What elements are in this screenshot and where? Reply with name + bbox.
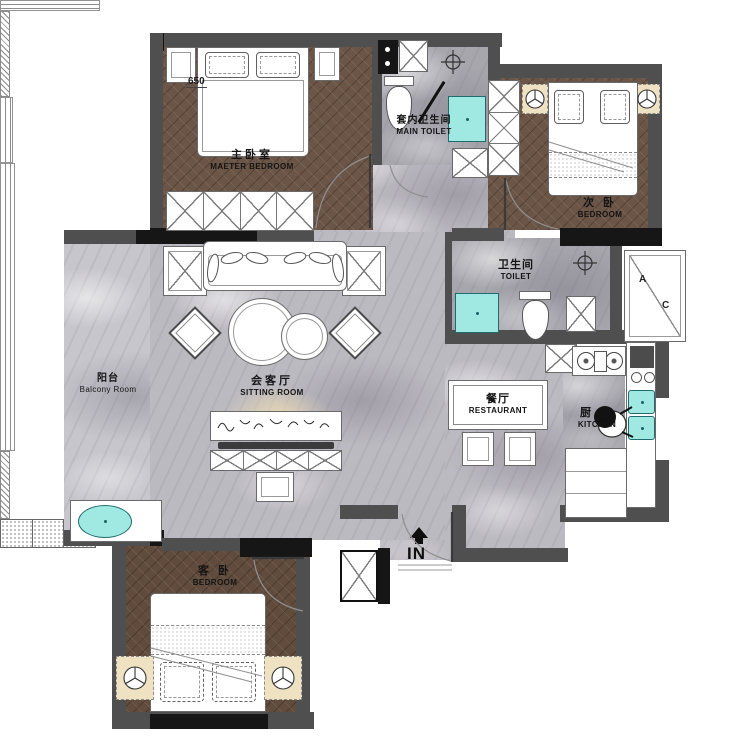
master-bedroom-label: 主卧室 MAETER BEDROOM	[202, 148, 302, 173]
toilet-label: 卫生间 TOILET	[471, 258, 561, 283]
toilet-left-wall	[445, 232, 452, 344]
toilet-vanity	[455, 293, 499, 333]
master-pillow-left	[205, 52, 249, 78]
tv-bench	[256, 472, 294, 502]
master-wardrobe-door	[204, 192, 241, 230]
toilet-tank	[519, 291, 551, 300]
entrance-label: IN	[407, 544, 426, 564]
side-table-top	[347, 251, 381, 291]
kitchen-right-wall-upper	[655, 344, 669, 398]
utility-shaft	[340, 550, 378, 602]
master-pillow-right	[256, 52, 300, 78]
tv-bench-top	[261, 477, 289, 497]
second-bed-blanket	[549, 152, 637, 178]
dining-room-label-en: RESTAURANT	[448, 406, 548, 416]
master-wardrobe-door	[241, 192, 278, 230]
kitchen-right-window	[0, 97, 13, 163]
shaft-right-wall	[378, 548, 390, 604]
pillow-seam	[604, 94, 626, 120]
guest-bedroom-label-zh: 客 卧	[165, 564, 265, 578]
pillow-seam	[558, 94, 580, 120]
dining-chair-left	[462, 432, 494, 466]
entrance-arrow-head	[410, 527, 428, 538]
guest-pillow-left	[160, 662, 204, 702]
stove-burner-left	[577, 352, 595, 370]
kitchen-counter-bottom	[565, 448, 627, 518]
stove-burner-right	[605, 352, 623, 370]
master-bed-sheet	[202, 80, 304, 152]
guest-top-wall	[162, 538, 240, 551]
main-toilet-counter	[378, 40, 398, 74]
tv-cabinet-door	[277, 451, 310, 470]
main-toilet-label-en: MAIN TOILET	[379, 127, 469, 137]
master-nightstand-right	[314, 47, 340, 81]
balcony-label-en: Balcony Room	[68, 385, 148, 395]
sideboard-section	[1, 520, 33, 547]
second-bedroom-nightstand-left	[522, 84, 548, 114]
sofa-seat	[208, 255, 342, 286]
toilet-label-en: TOILET	[471, 272, 561, 282]
guest-bottom-wall-black	[150, 714, 268, 729]
sofa-side-table-right	[342, 246, 386, 296]
balcony-top-corner	[136, 230, 163, 244]
ac-unit-panel	[629, 255, 681, 337]
master-wardrobe-door	[167, 192, 204, 230]
stove	[572, 346, 626, 376]
guest-nightstand-right	[264, 656, 302, 700]
guest-top-wall-black	[240, 538, 312, 557]
chair-seat	[509, 437, 531, 461]
master-left-wall	[150, 33, 163, 233]
ac-letter-c: C	[662, 300, 669, 311]
coffee-table-small	[281, 313, 328, 360]
ac-unit	[624, 250, 686, 342]
entry-left-wall	[340, 505, 398, 519]
ac-top-wall	[610, 232, 630, 246]
toilet-cabinet	[566, 296, 596, 332]
second-bed-pillow-right	[600, 90, 630, 124]
kitchen-label: 厨 房 KITCHEN	[552, 406, 642, 431]
dining-room-label-zh: 餐厅	[448, 392, 548, 406]
wardrobe-door	[489, 144, 519, 175]
stove-center-panel	[594, 351, 607, 372]
counter-basin-dot	[385, 47, 390, 52]
balcony-sink	[78, 505, 132, 538]
sitting-room-label-zh: 会客厅	[222, 374, 322, 388]
guest-nightstand-left	[116, 656, 154, 700]
master-bedroom-label-en: MAETER BEDROOM	[202, 162, 302, 172]
tv-screen	[218, 442, 334, 449]
second-bedroom-label-en: BEDROOM	[555, 210, 645, 220]
master-bedroom-label-zh: 主卧室	[202, 148, 302, 162]
sitting-room-label-en: SITTING ROOM	[222, 388, 322, 398]
second-bedroom-label: 次 卧 BEDROOM	[555, 196, 645, 221]
master-top-window	[0, 0, 100, 11]
balcony-label: 阳台 Balcony Room	[68, 372, 148, 395]
second-bedroom-label-zh: 次 卧	[555, 196, 645, 210]
washer	[399, 40, 428, 72]
vanity-faucet-dot	[476, 312, 479, 315]
dining-room-label: 餐厅 RESTAURANT	[448, 392, 548, 417]
guest-bed-blanket	[151, 625, 265, 655]
side-table-top	[168, 251, 202, 291]
floor-plan: 650 A C	[0, 0, 750, 754]
sink-drain-dot	[641, 401, 644, 404]
kitchen-counter-dark	[630, 346, 654, 368]
balcony-left-window	[0, 163, 15, 451]
master-top-wall	[150, 33, 382, 47]
hob-knob	[631, 372, 642, 383]
balcony-label-zh: 阳台	[68, 372, 148, 385]
chair-seat	[467, 437, 489, 461]
tv-cabinet-door	[244, 451, 277, 470]
sofa	[203, 241, 347, 291]
master-wardrobe-door	[277, 192, 313, 230]
dining-chair-right	[504, 432, 536, 466]
main-toilet-tank	[384, 76, 414, 86]
guest-left-window	[0, 451, 10, 519]
master-wardrobe	[166, 191, 314, 231]
counter-basin-dot	[385, 61, 390, 66]
tv-console-decor	[210, 411, 342, 441]
sideboard-section	[33, 520, 65, 547]
master-nightstand-left-top	[171, 52, 191, 78]
toilet-label-zh: 卫生间	[471, 258, 561, 272]
pillow-seam	[216, 666, 252, 698]
pillow-seam	[164, 666, 200, 698]
second-bedroom-right-window	[0, 11, 10, 97]
second-bedroom-cabinet	[452, 148, 488, 178]
wardrobe-door	[489, 81, 519, 113]
second-bedroom-top-wall	[490, 64, 662, 78]
second-bedroom-wardrobe	[488, 80, 520, 176]
sitting-room-label: 会客厅 SITTING ROOM	[222, 374, 322, 399]
kitchen-label-zh: 厨 房	[552, 406, 642, 420]
hob-knob	[644, 372, 655, 383]
guest-bedroom-label: 客 卧 BEDROOM	[165, 564, 265, 589]
kitchen-label-en: KITCHEN	[552, 420, 642, 430]
second-bed-pillow-left	[554, 90, 584, 124]
toilet-top-wall	[452, 228, 504, 241]
tv-cabinet-door	[309, 451, 341, 470]
master-nightstand-right-top	[319, 52, 335, 76]
wardrobe-door	[489, 113, 519, 145]
master-pillow-right-seam	[260, 56, 296, 74]
tv-cabinet-door	[211, 451, 244, 470]
main-toilet-label: 套内卫生间 MAIN TOILET	[379, 114, 469, 137]
sink-drain-dot	[104, 520, 107, 523]
guest-bedroom-label-en: BEDROOM	[165, 578, 265, 588]
main-toilet-label-zh: 套内卫生间	[379, 114, 469, 127]
master-pillow-left-seam	[209, 56, 245, 74]
ac-letter-a: A	[639, 274, 646, 285]
guest-pillow-right	[212, 662, 256, 702]
corridor-bottom-wall	[452, 548, 568, 562]
dimension-650: 650	[186, 76, 207, 88]
sofa-side-table-left	[163, 246, 207, 296]
tv-cabinet	[210, 450, 342, 471]
